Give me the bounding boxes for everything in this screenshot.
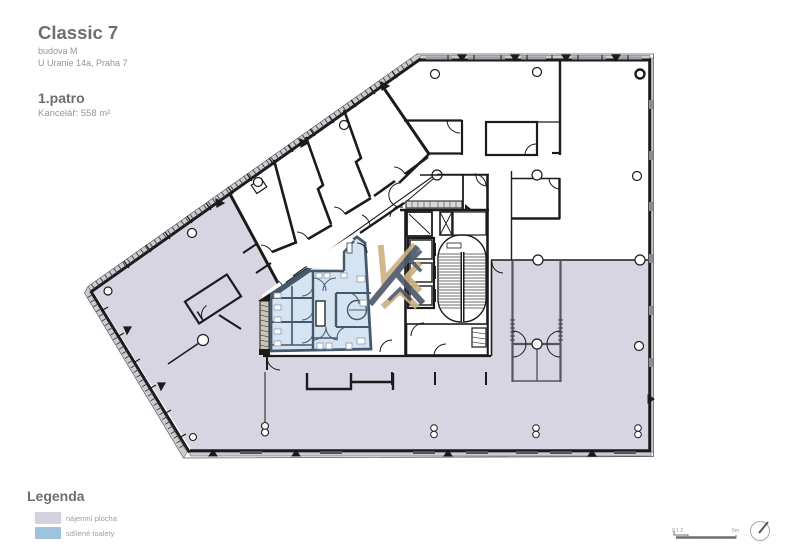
svg-text:U Uranie 14a, Praha 7: U Uranie 14a, Praha 7	[38, 58, 128, 68]
svg-text:sdílené toalety: sdílené toalety	[66, 529, 115, 538]
svg-text:5m: 5m	[732, 528, 739, 534]
svg-text:nájemní plocha: nájemní plocha	[66, 514, 118, 523]
svg-text:Classic 7: Classic 7	[38, 22, 118, 43]
svg-text:budova M: budova M	[38, 46, 78, 56]
svg-text:Legenda: Legenda	[27, 488, 85, 504]
svg-text:1.patro: 1.patro	[38, 90, 85, 106]
svg-text:Kancelář: 558 m²: Kancelář: 558 m²	[38, 108, 110, 119]
